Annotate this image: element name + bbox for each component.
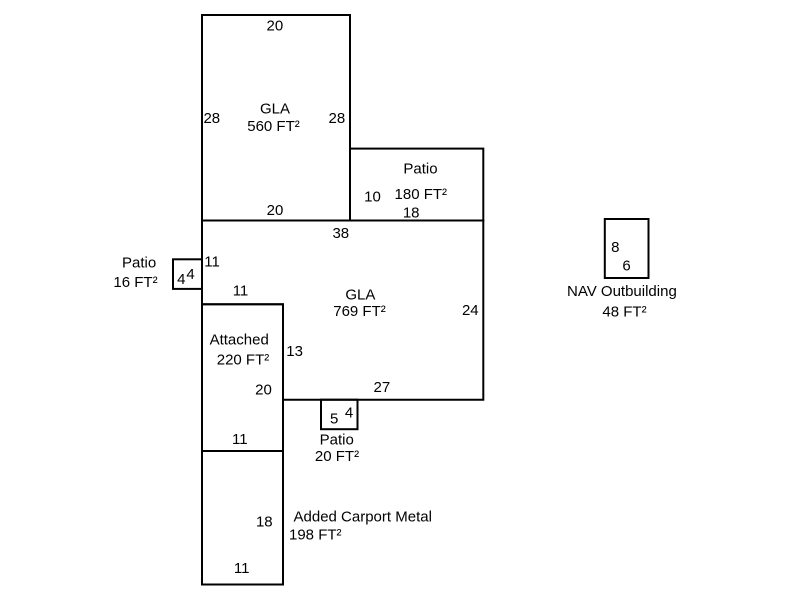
svg-text:11: 11 [232, 431, 248, 448]
svg-text:28: 28 [203, 110, 220, 127]
svg-text:8: 8 [611, 239, 619, 256]
svg-text:20: 20 [255, 382, 272, 399]
svg-text:48 FT²: 48 FT² [602, 304, 646, 321]
svg-text:Patio: Patio [320, 432, 354, 449]
svg-text:Attached: Attached [210, 331, 269, 348]
svg-text:24: 24 [462, 302, 479, 319]
svg-text:20: 20 [267, 202, 284, 219]
svg-text:4: 4 [345, 405, 353, 422]
svg-text:28: 28 [329, 110, 346, 127]
svg-text:769 FT²: 769 FT² [333, 303, 386, 320]
svg-text:Patio: Patio [122, 255, 156, 272]
svg-text:GLA: GLA [345, 286, 375, 303]
svg-text:38: 38 [332, 225, 349, 242]
svg-text:GLA: GLA [260, 101, 290, 118]
svg-text:11: 11 [234, 560, 250, 577]
svg-text:18: 18 [256, 514, 273, 531]
svg-text:20 FT²: 20 FT² [315, 448, 359, 465]
svg-text:180 FT²: 180 FT² [395, 186, 448, 203]
svg-text:20: 20 [267, 18, 284, 35]
svg-text:Patio: Patio [403, 161, 437, 178]
svg-text:13: 13 [286, 343, 303, 360]
svg-text:6: 6 [622, 257, 630, 274]
svg-text:16 FT²: 16 FT² [113, 274, 157, 291]
svg-text:10: 10 [364, 189, 381, 206]
svg-text:Added Carport Metal: Added Carport Metal [294, 509, 432, 526]
svg-text:198 FT²: 198 FT² [289, 527, 342, 544]
svg-text:5: 5 [330, 411, 338, 428]
svg-text:4: 4 [186, 266, 194, 283]
svg-text:11: 11 [204, 254, 220, 271]
svg-text:NAV Outbuilding: NAV Outbuilding [567, 283, 677, 300]
svg-text:27: 27 [374, 379, 391, 396]
svg-text:560 FT²: 560 FT² [247, 118, 300, 135]
svg-text:18: 18 [403, 205, 420, 222]
svg-text:11: 11 [233, 283, 249, 300]
svg-text:220 FT²: 220 FT² [217, 351, 270, 368]
svg-text:4: 4 [177, 271, 185, 288]
